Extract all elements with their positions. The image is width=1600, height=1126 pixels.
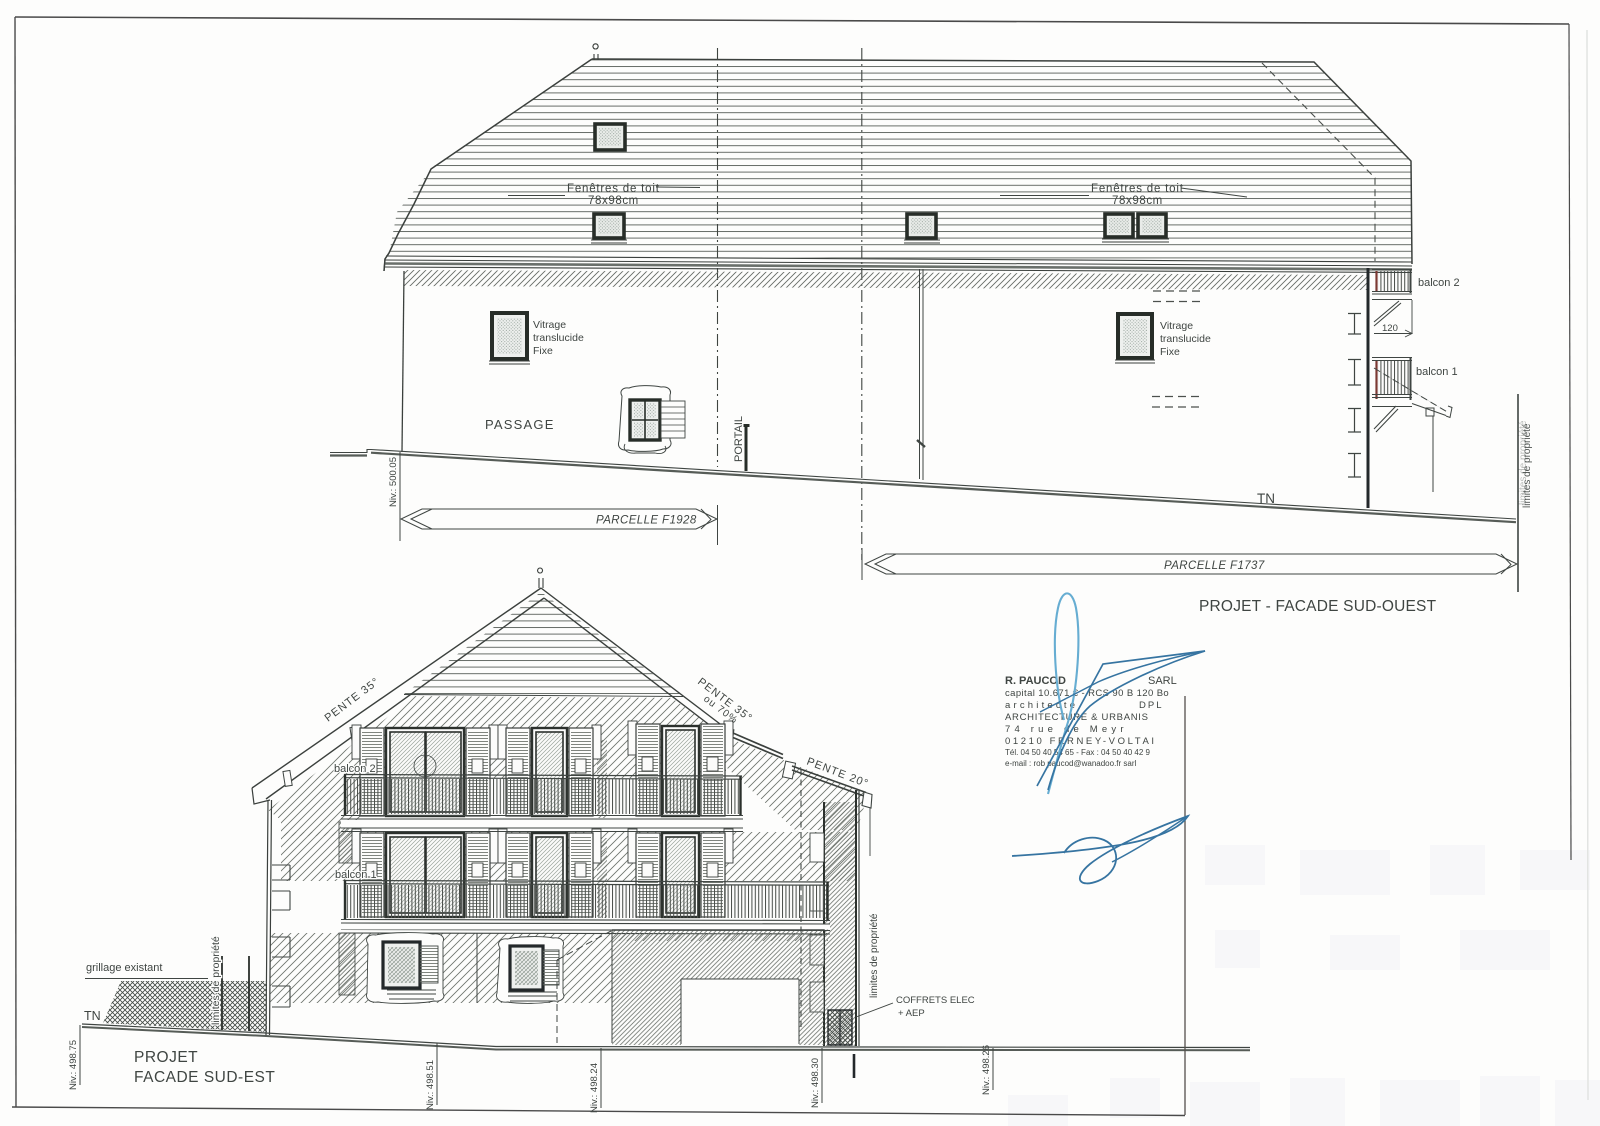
svg-text:limites de propriété: limites de propriété: [210, 936, 222, 1025]
svg-text:translucide: translucide: [1160, 333, 1211, 345]
svg-text:PASSAGE: PASSAGE: [485, 417, 555, 432]
svg-text:78x98cm: 78x98cm: [588, 195, 639, 207]
svg-text:balcon 2: balcon 2: [1418, 277, 1460, 289]
svg-text:Fenêtres de toit: Fenêtres de toit: [567, 183, 660, 195]
svg-text:architecte: architecte: [1005, 700, 1078, 711]
svg-text:DPL: DPL: [1139, 700, 1163, 711]
svg-text:Niv.: 498.51: Niv.: 498.51: [425, 1060, 436, 1110]
svg-text:Fenêtres de toit: Fenêtres de toit: [1091, 183, 1184, 195]
svg-text:balcon 1: balcon 1: [335, 869, 377, 881]
svg-text:translucide: translucide: [533, 332, 584, 344]
svg-text:FACADE SUD-EST: FACADE SUD-EST: [134, 1069, 275, 1086]
svg-text:120: 120: [1382, 323, 1398, 334]
svg-text:PROJET: PROJET: [134, 1049, 198, 1066]
svg-text:PROJET - FACADE SUD-OUEST: PROJET - FACADE SUD-OUEST: [1199, 598, 1437, 615]
svg-text:Vitrage: Vitrage: [533, 319, 566, 331]
svg-text:Niv.: 498.26: Niv.: 498.26: [981, 1045, 992, 1095]
svg-text:balcon 1: balcon 1: [1416, 366, 1458, 378]
svg-text:limites de propriété: limites de propriété: [1518, 420, 1529, 505]
svg-text:PORTAIL: PORTAIL: [733, 416, 745, 462]
svg-text:COFFRETS ELEC: COFFRETS ELEC: [896, 995, 975, 1006]
svg-text:PARCELLE F1737: PARCELLE F1737: [1164, 560, 1265, 572]
svg-text:limites de propriété: limites de propriété: [869, 913, 880, 998]
svg-text:grillage existant: grillage existant: [86, 962, 162, 974]
svg-text:Niv.: 498.24: Niv.: 498.24: [589, 1063, 600, 1113]
svg-text:+ AEP: + AEP: [898, 1008, 925, 1019]
svg-text:SARL: SARL: [1148, 675, 1177, 687]
svg-text:TN: TN: [84, 1009, 101, 1023]
svg-text:e-mail : rob paucod@wanadoo.f: e-mail : rob paucod@wanadoo.fr sarl: [1005, 759, 1137, 768]
svg-text:PARCELLE F1928: PARCELLE F1928: [596, 515, 697, 527]
svg-text:TN: TN: [1257, 491, 1275, 506]
svg-text:Fixe: Fixe: [1160, 346, 1180, 358]
svg-text:Niv.: 498.75: Niv.: 498.75: [68, 1040, 79, 1090]
svg-text:01210 FERNEY-VOLTAI: 01210 FERNEY-VOLTAI: [1005, 736, 1157, 747]
svg-text:Niv.: 500.05: Niv.: 500.05: [388, 457, 399, 507]
svg-text:Fixe: Fixe: [533, 345, 553, 357]
svg-text:balcon 2: balcon 2: [334, 763, 376, 775]
svg-text:Vitrage: Vitrage: [1160, 320, 1193, 332]
svg-text:78x98cm: 78x98cm: [1112, 195, 1163, 207]
svg-text:Niv.: 498.30: Niv.: 498.30: [810, 1058, 821, 1108]
svg-text:Tél. 04 50 40 54 65 - Fax : 04: Tél. 04 50 40 54 65 - Fax : 04 50 40 42 …: [1005, 748, 1151, 757]
